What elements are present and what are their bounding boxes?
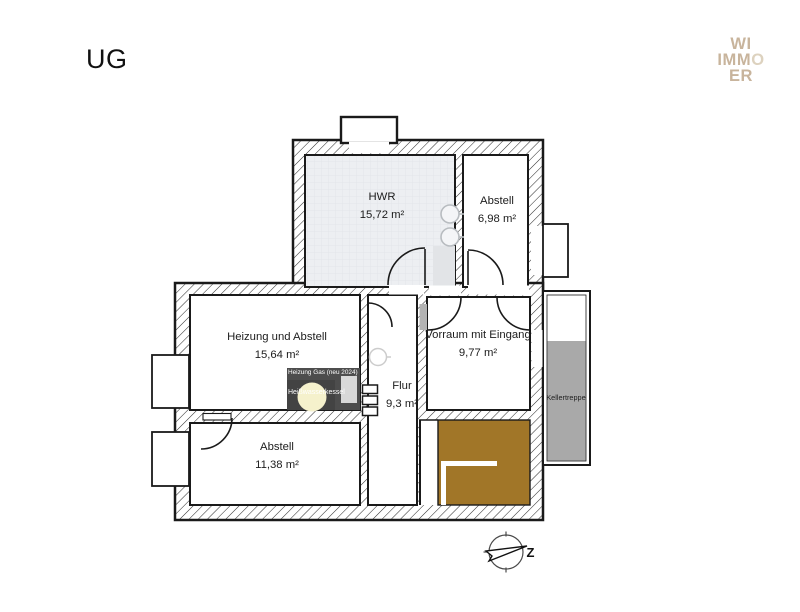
hwr-niche [433, 246, 455, 287]
room-label-flur: Flur9,3 m² [386, 377, 418, 413]
room-label-abstell-top: Abstell6,98 m² [478, 192, 516, 228]
door-gap-hwr [389, 285, 424, 295]
room-label-abstell-bottom: Abstell11,38 m² [255, 438, 299, 474]
annotation-heizung-gas: Heizung Gas (neu 2024) [288, 369, 358, 376]
compass-label: Z [527, 545, 535, 560]
chimney [341, 117, 397, 143]
radiator-icon [363, 385, 378, 416]
door-leaf-abstell-bottom [203, 414, 231, 421]
window-well-left-1 [152, 355, 189, 408]
room-label-heizung: Heizung und Abstell15,64 m² [227, 328, 327, 364]
stair-mark-horizontal [441, 461, 497, 466]
floorplan-page: UG WI IMMO ER [0, 0, 800, 612]
window-well-right [543, 224, 568, 277]
room-label-kellertreppe: Kellertreppe [546, 393, 585, 402]
floorplan-canvas: Z [0, 0, 800, 612]
stair-landing [420, 420, 438, 505]
room-label-hwr: HWR15,72 m² [360, 188, 405, 224]
chimney-wall-gap [349, 142, 389, 154]
stair-mark-vertical [441, 461, 446, 505]
door-gap-kellertreppe [532, 330, 543, 367]
boiler-icon [298, 383, 327, 412]
north-arrow-icon: Z [484, 532, 535, 573]
door-gap-abstell-top [468, 285, 502, 295]
door-gap-vorraum-left [429, 286, 461, 296]
room-label-vorraum: Vorraum mit Eingang9,77 m² [425, 326, 531, 362]
annotation-kessel: Heißwasserkessel [288, 389, 345, 396]
window-well-left-2 [152, 432, 189, 486]
window-gap-right [531, 226, 543, 275]
door-gap-vorraum-right [497, 286, 529, 296]
